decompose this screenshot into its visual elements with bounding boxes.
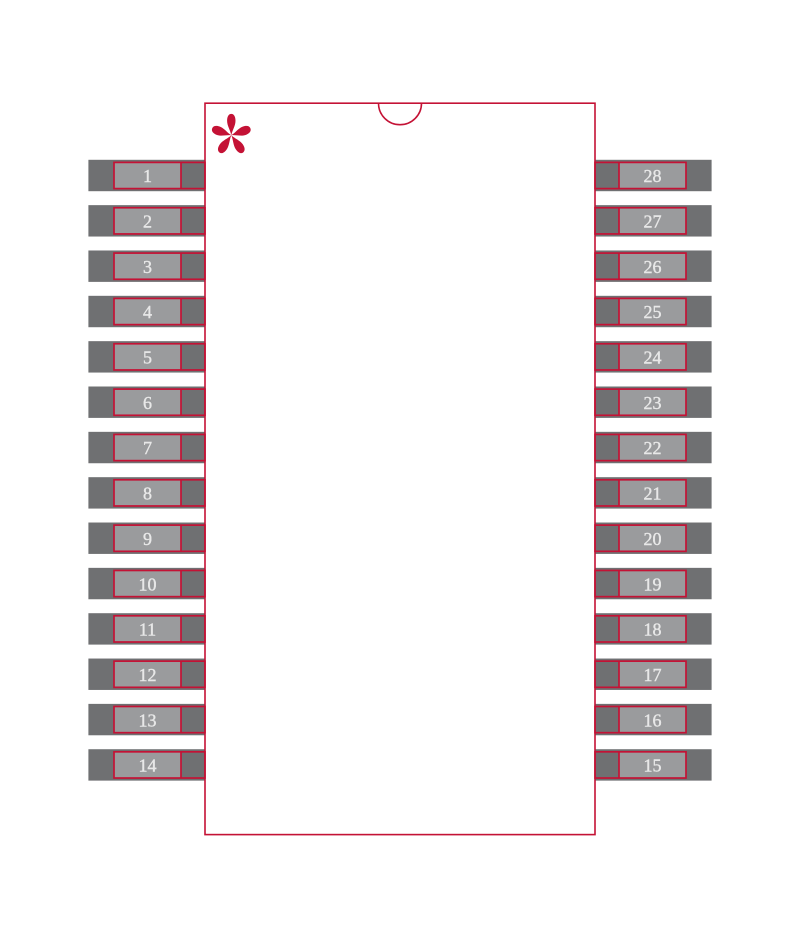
svg-text:11: 11	[139, 620, 156, 640]
svg-text:7: 7	[143, 438, 152, 458]
svg-text:22: 22	[644, 438, 662, 458]
svg-text:5: 5	[143, 348, 152, 368]
svg-text:15: 15	[644, 756, 662, 776]
svg-text:19: 19	[644, 574, 662, 594]
svg-text:6: 6	[143, 393, 152, 413]
svg-text:20: 20	[644, 529, 662, 549]
svg-text:12: 12	[139, 665, 157, 685]
svg-text:3: 3	[143, 257, 152, 277]
svg-text:13: 13	[139, 710, 157, 730]
svg-text:14: 14	[139, 756, 157, 776]
svg-text:1: 1	[143, 166, 152, 186]
svg-text:27: 27	[644, 212, 662, 232]
svg-text:21: 21	[644, 484, 662, 504]
svg-text:28: 28	[644, 166, 662, 186]
svg-text:18: 18	[644, 620, 662, 640]
svg-text:9: 9	[143, 529, 152, 549]
svg-text:10: 10	[139, 574, 157, 594]
svg-text:17: 17	[644, 665, 662, 685]
svg-text:24: 24	[644, 348, 662, 368]
svg-text:25: 25	[644, 302, 662, 322]
svg-text:23: 23	[644, 393, 662, 413]
svg-text:8: 8	[143, 484, 152, 504]
svg-text:4: 4	[143, 302, 152, 322]
svg-text:16: 16	[644, 710, 662, 730]
svg-text:26: 26	[644, 257, 662, 277]
svg-text:2: 2	[143, 212, 152, 232]
